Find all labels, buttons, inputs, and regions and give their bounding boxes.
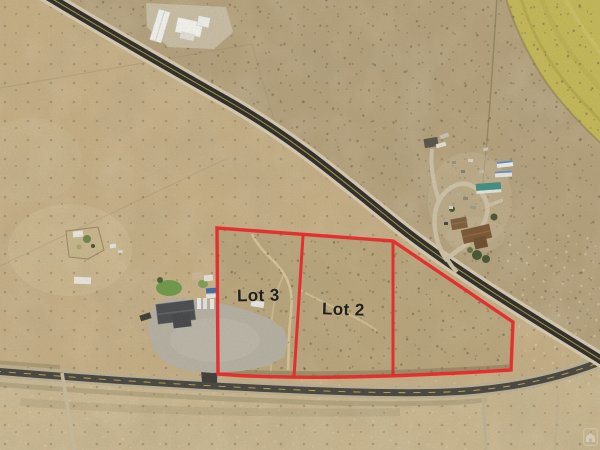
house-watermark-icon — [583, 428, 598, 446]
photo-grain — [0, 0, 600, 450]
aerial-photo-canvas — [0, 0, 600, 450]
aerial-photo: Lot 3 Lot 2 — [0, 0, 600, 450]
